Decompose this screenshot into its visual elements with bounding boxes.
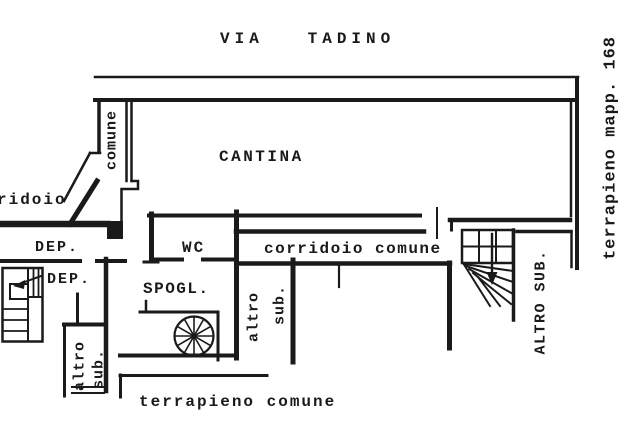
floor-plan-drawing (0, 0, 638, 433)
dogleg-staircase (3, 268, 43, 342)
entry-corridor-walls (0, 100, 138, 239)
terrapieno-boundary (120, 375, 267, 397)
corridor-walls (236, 232, 571, 363)
floor-plan: VIA TADINO terrapieno mapp. 168 comune r… (0, 0, 638, 433)
right-staircase (462, 230, 514, 320)
spiral-staircase (120, 301, 236, 360)
building-outer-walls (95, 78, 577, 268)
dep-room-walls (0, 259, 125, 396)
